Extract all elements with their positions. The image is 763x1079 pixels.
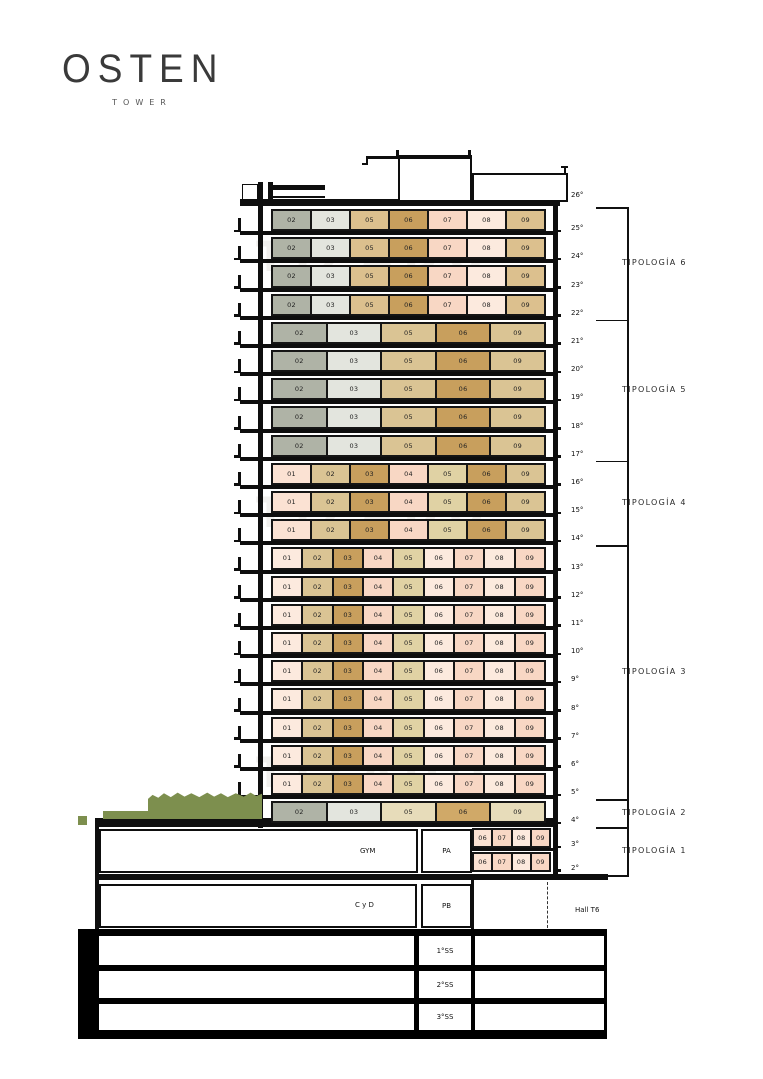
unit-cell: 08 xyxy=(467,295,506,315)
unit-cell: 03 xyxy=(333,718,363,738)
unit-cell: 07 xyxy=(454,661,484,681)
unit-number: 01 xyxy=(283,583,292,591)
hall-divider-dashed xyxy=(547,882,548,928)
unit-cells: 01020304050609 xyxy=(271,491,546,513)
unit-cell: 04 xyxy=(363,633,393,653)
unit-number: 03 xyxy=(365,526,374,534)
unit-cell: 05 xyxy=(393,633,423,653)
unit-cell: 02 xyxy=(272,351,327,371)
unit-cell: 09 xyxy=(515,633,545,653)
unit-cell: 06 xyxy=(424,577,454,597)
unit-cell: 07 xyxy=(454,689,484,709)
balcony-hook-right xyxy=(555,858,558,872)
balcony-hook-right xyxy=(555,218,558,232)
floor-row: 01020304050607080910° xyxy=(0,630,763,658)
unit-cell: 06 xyxy=(389,210,428,230)
balcony-hook-left xyxy=(238,754,241,768)
unit-cell: 02 xyxy=(272,238,311,258)
logo: OSTEN TOWER xyxy=(62,48,222,107)
unit-cell: 06 xyxy=(389,295,428,315)
unit-number: 05 xyxy=(404,695,413,703)
unit-cell: 04 xyxy=(363,774,393,794)
balcony-hook-left xyxy=(238,726,241,740)
basement-strip xyxy=(99,971,414,998)
unit-cell: 06 xyxy=(473,853,492,871)
unit-cell: 09 xyxy=(490,436,545,456)
unit-number: 07 xyxy=(465,695,474,703)
unit-number: 08 xyxy=(517,858,526,866)
unit-cell: 06 xyxy=(436,407,491,427)
roof-parapet-post xyxy=(258,182,263,205)
unit-cell: 01 xyxy=(272,633,302,653)
balcony-hook-left xyxy=(238,359,241,373)
typology-label: TIPOLOGÍA 2 xyxy=(622,808,687,817)
unit-cell: 03 xyxy=(350,492,389,512)
unit-number: 02 xyxy=(326,498,335,506)
floor-label: 3° xyxy=(571,840,579,848)
unit-number: 03 xyxy=(349,413,358,421)
unit-cell: 07 xyxy=(492,829,511,847)
unit-cell: 08 xyxy=(484,718,514,738)
unit-cell: 09 xyxy=(531,853,550,871)
unit-cells: 0203050609 xyxy=(271,435,546,457)
unit-cell: 02 xyxy=(311,520,350,540)
unit-number: 09 xyxy=(521,470,530,478)
unit-cell: 05 xyxy=(350,295,389,315)
balcony-hook-left xyxy=(238,585,241,599)
unit-cell: 03 xyxy=(333,774,363,794)
unit-cell: 02 xyxy=(311,492,350,512)
unit-number: 08 xyxy=(495,752,504,760)
unit-cell: 01 xyxy=(272,661,302,681)
balcony-hook-right xyxy=(555,359,558,373)
unit-number: 05 xyxy=(404,667,413,675)
unit-cells: 02030506070809 xyxy=(271,209,546,231)
unit-number: 03 xyxy=(349,808,358,816)
floor-label: 8° xyxy=(571,704,579,712)
unit-number: 03 xyxy=(349,357,358,365)
unit-cells: 01020304050609 xyxy=(271,463,546,485)
unit-number: 02 xyxy=(295,808,304,816)
unit-cell: 09 xyxy=(515,774,545,794)
unit-number: 07 xyxy=(465,554,474,562)
unit-cell: 01 xyxy=(272,605,302,625)
unit-cell: 08 xyxy=(484,689,514,709)
unit-cell: 01 xyxy=(272,746,302,766)
unit-number: 07 xyxy=(497,858,506,866)
unit-cell: 03 xyxy=(333,633,363,653)
basement-strip xyxy=(475,1004,604,1030)
pb-room: PB xyxy=(421,884,472,928)
unit-number: 03 xyxy=(343,611,352,619)
unit-cell: 04 xyxy=(363,689,393,709)
unit-number: 05 xyxy=(404,583,413,591)
unit-number: 09 xyxy=(536,858,545,866)
balcony-hook-left xyxy=(238,387,241,401)
unit-cell: 02 xyxy=(272,379,327,399)
unit-cell: 09 xyxy=(506,295,545,315)
unit-number: 05 xyxy=(404,611,413,619)
balcony-hook-right xyxy=(555,834,558,848)
unit-cell: 08 xyxy=(484,548,514,568)
balcony-hook-left xyxy=(238,557,241,571)
unit-number: 02 xyxy=(295,385,304,393)
unit-cell: 05 xyxy=(393,577,423,597)
unit-number: 01 xyxy=(283,780,292,788)
unit-cell: 02 xyxy=(272,266,311,286)
unit-number: 07 xyxy=(443,244,452,252)
floor-label: 7° xyxy=(571,732,579,740)
unit-number: 09 xyxy=(513,413,522,421)
unit-number: 05 xyxy=(404,554,413,562)
unit-number: 03 xyxy=(365,470,374,478)
unit-cell: 06 xyxy=(424,633,454,653)
floor-row: 01020304050607080911° xyxy=(0,602,763,630)
unit-number: 08 xyxy=(495,611,504,619)
unit-number: 06 xyxy=(434,554,443,562)
floor-row: 01020304050607080912° xyxy=(0,574,763,602)
unit-cell: 06 xyxy=(436,436,491,456)
unit-number: 07 xyxy=(497,834,506,842)
unit-cell: 09 xyxy=(506,210,545,230)
unit-cell: 07 xyxy=(454,774,484,794)
unit-cell: 06 xyxy=(467,492,506,512)
basement-level-label: 1°SS xyxy=(437,947,454,955)
unit-number: 02 xyxy=(313,780,322,788)
unit-number: 06 xyxy=(434,695,443,703)
balcony-hook-left xyxy=(238,698,241,712)
unit-cell: 09 xyxy=(506,266,545,286)
unit-cell: 07 xyxy=(454,577,484,597)
balcony-hook-right xyxy=(555,585,558,599)
unit-cell: 08 xyxy=(512,853,531,871)
unit-cells: 0203050609 xyxy=(271,378,546,400)
unit-number: 06 xyxy=(459,357,468,365)
unit-number: 04 xyxy=(374,752,383,760)
floor-label: 2° xyxy=(571,864,579,872)
unit-number: 08 xyxy=(482,216,491,224)
unit-number: 05 xyxy=(443,470,452,478)
unit-number: 05 xyxy=(365,216,374,224)
basement-strip xyxy=(99,936,414,965)
roof-hook-right xyxy=(564,167,567,175)
unit-cell: 04 xyxy=(363,548,393,568)
balcony-hook-right xyxy=(555,331,558,345)
floor-label: 5° xyxy=(571,788,579,796)
unit-number: 06 xyxy=(434,724,443,732)
unit-cell: 03 xyxy=(311,238,350,258)
unit-number: 09 xyxy=(536,834,545,842)
balcony-hook-right xyxy=(555,641,558,655)
unit-cells: 06070809 xyxy=(472,852,551,872)
unit-number: 08 xyxy=(482,272,491,280)
unit-number: 03 xyxy=(326,244,335,252)
unit-cell: 06 xyxy=(424,718,454,738)
basement-strip xyxy=(475,971,604,998)
logo-title: OSTEN xyxy=(62,46,222,91)
floor-row: 0203050607080922° xyxy=(0,292,763,320)
unit-number: 01 xyxy=(287,498,296,506)
balcony-hook-right xyxy=(555,669,558,683)
unit-cell: 06 xyxy=(467,464,506,484)
unit-cell: 02 xyxy=(302,746,332,766)
unit-number: 02 xyxy=(313,583,322,591)
unit-number: 05 xyxy=(365,301,374,309)
unit-cell: 06 xyxy=(473,829,492,847)
unit-number: 09 xyxy=(521,498,530,506)
floor-row: 020305060920° xyxy=(0,348,763,376)
unit-cell: 04 xyxy=(363,661,393,681)
roof-railing-foot xyxy=(362,163,368,165)
balcony-hook-right xyxy=(555,726,558,740)
unit-number: 01 xyxy=(283,667,292,675)
unit-cell: 05 xyxy=(350,238,389,258)
floor-label: 15° xyxy=(571,506,583,514)
basement-level-box: 1°SS xyxy=(419,936,471,965)
unit-cell: 05 xyxy=(393,548,423,568)
unit-number: 09 xyxy=(513,808,522,816)
unit-cell: 08 xyxy=(467,210,506,230)
elevator-overrun-box xyxy=(398,155,472,202)
unit-cell: 04 xyxy=(389,464,428,484)
unit-number: 05 xyxy=(404,329,413,337)
roof-floor-label: 26° xyxy=(571,191,583,199)
unit-cell: 07 xyxy=(428,238,467,258)
unit-cells: 02030506070809 xyxy=(271,265,546,287)
unit-number: 05 xyxy=(404,724,413,732)
floor-row: 0102030405060708097° xyxy=(0,715,763,743)
unit-number: 08 xyxy=(495,583,504,591)
floor-row: 0102030405060914° xyxy=(0,517,763,545)
unit-number: 02 xyxy=(287,244,296,252)
unit-number: 02 xyxy=(287,272,296,280)
unit-number: 03 xyxy=(365,498,374,506)
unit-number: 09 xyxy=(525,639,534,647)
roof-box-right xyxy=(472,173,568,202)
roof-hook-right-cap xyxy=(561,166,568,168)
unit-number: 04 xyxy=(374,780,383,788)
floor-label: 14° xyxy=(571,534,583,542)
unit-cell: 04 xyxy=(363,605,393,625)
unit-cell: 03 xyxy=(327,802,382,822)
floor-label: 19° xyxy=(571,393,583,401)
unit-number: 06 xyxy=(404,216,413,224)
unit-cell: 03 xyxy=(333,548,363,568)
unit-cell: 02 xyxy=(272,407,327,427)
floor-label: 10° xyxy=(571,647,583,655)
unit-number: 03 xyxy=(349,385,358,393)
unit-cell: 03 xyxy=(350,464,389,484)
unit-cell: 03 xyxy=(333,746,363,766)
floor-label: 13° xyxy=(571,563,583,571)
unit-cell: 03 xyxy=(327,323,382,343)
unit-cell: 07 xyxy=(428,295,467,315)
unit-number: 02 xyxy=(313,752,322,760)
unit-number: 09 xyxy=(513,385,522,393)
unit-cell: 03 xyxy=(311,210,350,230)
unit-cell: 07 xyxy=(454,605,484,625)
unit-cell: 06 xyxy=(467,520,506,540)
unit-cell: 04 xyxy=(363,746,393,766)
unit-number: 07 xyxy=(443,301,452,309)
unit-number: 08 xyxy=(517,834,526,842)
unit-cell: 08 xyxy=(484,661,514,681)
unit-number: 06 xyxy=(434,611,443,619)
unit-cell: 09 xyxy=(490,407,545,427)
balcony-hook-right xyxy=(555,557,558,571)
unit-cell: 05 xyxy=(381,379,436,399)
unit-cell: 05 xyxy=(393,774,423,794)
plant-tuft xyxy=(78,816,87,825)
unit-cell: 09 xyxy=(506,464,545,484)
unit-number: 06 xyxy=(459,413,468,421)
unit-number: 08 xyxy=(495,639,504,647)
unit-number: 05 xyxy=(443,498,452,506)
unit-cell: 05 xyxy=(393,661,423,681)
unit-cell: 09 xyxy=(506,520,545,540)
unit-cell: 02 xyxy=(272,295,311,315)
unit-number: 02 xyxy=(313,611,322,619)
unit-number: 02 xyxy=(326,470,335,478)
unit-cells: 010203040506070809 xyxy=(271,547,546,569)
unit-number: 04 xyxy=(404,470,413,478)
unit-cell: 08 xyxy=(484,605,514,625)
unit-cell: 09 xyxy=(490,379,545,399)
balcony-hook-right xyxy=(555,500,558,514)
roof-parapet-line xyxy=(272,196,325,198)
unit-number: 09 xyxy=(525,611,534,619)
unit-cell: 05 xyxy=(350,210,389,230)
unit-number: 08 xyxy=(495,695,504,703)
balcony-hook-left xyxy=(238,669,241,683)
unit-cells: 010203040506070809 xyxy=(271,632,546,654)
unit-cell: 05 xyxy=(381,407,436,427)
balcony-hook-left xyxy=(238,416,241,430)
typology-label: TIPOLOGÍA 4 xyxy=(622,498,687,507)
unit-number: 03 xyxy=(343,554,352,562)
unit-cell: 09 xyxy=(515,577,545,597)
unit-cell: 05 xyxy=(393,689,423,709)
unit-cell: 03 xyxy=(333,605,363,625)
unit-number: 07 xyxy=(465,583,474,591)
unit-number: 03 xyxy=(343,639,352,647)
floor-row: 0203050607080923° xyxy=(0,263,763,291)
bracket-tick xyxy=(596,207,629,209)
unit-number: 01 xyxy=(283,554,292,562)
ground-floor-slab xyxy=(95,874,608,881)
unit-number: 09 xyxy=(525,583,534,591)
unit-number: 05 xyxy=(404,357,413,365)
unit-cell: 06 xyxy=(424,605,454,625)
unit-cell: 01 xyxy=(272,718,302,738)
unit-number: 07 xyxy=(465,611,474,619)
unit-number: 02 xyxy=(295,413,304,421)
floor-label: 6° xyxy=(571,760,579,768)
unit-number: 09 xyxy=(513,329,522,337)
unit-cell: 06 xyxy=(436,323,491,343)
unit-cell: 07 xyxy=(454,718,484,738)
unit-cell: 05 xyxy=(350,266,389,286)
unit-cell: 03 xyxy=(311,266,350,286)
cyd-label: C y D xyxy=(355,901,374,909)
unit-number: 06 xyxy=(482,526,491,534)
balcony-hook-right xyxy=(555,444,558,458)
balcony-hook-left xyxy=(238,275,241,289)
unit-cell: 08 xyxy=(512,829,531,847)
unit-cell: 03 xyxy=(327,351,382,371)
unit-cells: 010203040506070809 xyxy=(271,660,546,682)
bracket-tick xyxy=(596,320,629,322)
floor-row: 0102030405060708096° xyxy=(0,743,763,771)
unit-cell: 06 xyxy=(424,746,454,766)
unit-number: 05 xyxy=(365,244,374,252)
unit-cells: 0203050609 xyxy=(271,801,546,823)
bracket-tick xyxy=(596,827,629,829)
ground-cover-plants xyxy=(103,811,150,819)
unit-number: 04 xyxy=(404,498,413,506)
unit-number: 09 xyxy=(521,244,530,252)
unit-cell: 05 xyxy=(381,436,436,456)
unit-number: 06 xyxy=(434,639,443,647)
floor-row: 0203050607080925° xyxy=(0,207,763,235)
unit-cell: 09 xyxy=(490,802,545,822)
balcony-hook-left xyxy=(238,331,241,345)
unit-number: 03 xyxy=(343,695,352,703)
unit-number: 02 xyxy=(295,357,304,365)
unit-number: 05 xyxy=(404,385,413,393)
unit-number: 02 xyxy=(326,526,335,534)
balcony-hook-left xyxy=(238,500,241,514)
unit-cell: 02 xyxy=(272,323,327,343)
unit-cell: 04 xyxy=(363,718,393,738)
unit-number: 03 xyxy=(343,667,352,675)
unit-cell: 03 xyxy=(327,379,382,399)
unit-cell: 01 xyxy=(272,492,311,512)
floor-row: 01020304050607080913° xyxy=(0,545,763,573)
unit-number: 04 xyxy=(374,724,383,732)
unit-number: 07 xyxy=(465,724,474,732)
unit-cell: 05 xyxy=(428,492,467,512)
balcony-hook-right xyxy=(555,303,558,317)
balcony-hook-left xyxy=(238,782,241,796)
unit-cell: 07 xyxy=(428,266,467,286)
unit-cell: 03 xyxy=(333,661,363,681)
typology-label: TIPOLOGÍA 6 xyxy=(622,258,687,267)
building-section-drawing: OSTEN TOWER TIZADO TIZADO TIZADO 26° 020… xyxy=(0,0,763,1079)
unit-number: 01 xyxy=(283,724,292,732)
unit-number: 06 xyxy=(478,834,487,842)
unit-number: 03 xyxy=(343,752,352,760)
unit-number: 02 xyxy=(313,724,322,732)
unit-number: 09 xyxy=(521,216,530,224)
balcony-hook-right xyxy=(555,698,558,712)
basement-level-box: 3°SS xyxy=(419,1004,471,1030)
unit-number: 07 xyxy=(443,216,452,224)
unit-number: 09 xyxy=(525,695,534,703)
unit-number: 08 xyxy=(495,554,504,562)
unit-cell: 05 xyxy=(381,323,436,343)
balcony-hook-right xyxy=(555,275,558,289)
unit-number: 06 xyxy=(434,752,443,760)
basement-level-label: 2°SS xyxy=(437,981,454,989)
balcony-hook-left xyxy=(238,528,241,542)
balcony-hook-right xyxy=(555,246,558,260)
unit-number: 01 xyxy=(287,470,296,478)
unit-number: 02 xyxy=(313,639,322,647)
unit-cell: 02 xyxy=(272,436,327,456)
unit-cell: 03 xyxy=(333,577,363,597)
unit-number: 02 xyxy=(313,554,322,562)
